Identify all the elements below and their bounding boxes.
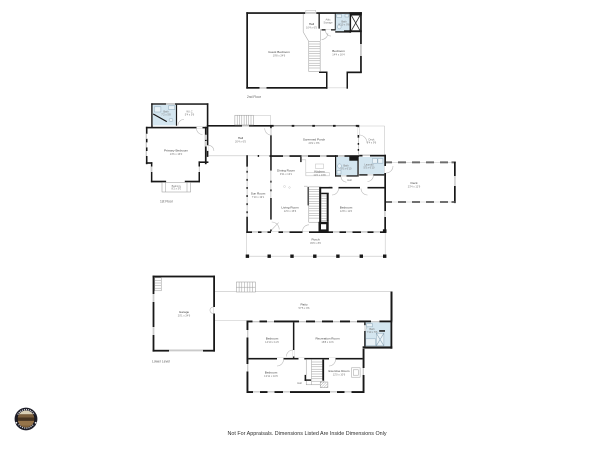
svg-text:13'11 x 10'6: 13'11 x 10'6 xyxy=(264,374,278,378)
svg-text:11'0 x 13'8: 11'0 x 13'8 xyxy=(313,173,326,177)
svg-text:Exercise Room: Exercise Room xyxy=(329,369,350,373)
svg-text:Bedroom: Bedroom xyxy=(340,206,353,210)
svg-text:Dining Room: Dining Room xyxy=(277,169,295,173)
svg-text:10'4 x 6'5: 10'4 x 6'5 xyxy=(306,25,317,29)
svg-text:5'4 x 5'6: 5'4 x 5'6 xyxy=(185,112,195,116)
svg-text:5'5 x 6'10: 5'5 x 6'10 xyxy=(364,165,375,169)
svg-text:7'2 x 5'8: 7'2 x 5'8 xyxy=(161,112,171,116)
svg-text:9'11 x 13'1: 9'11 x 13'1 xyxy=(280,172,293,176)
svg-text:5'10 x 9'6: 5'10 x 9'6 xyxy=(339,22,350,26)
svg-text:12'0 x 15'6: 12'0 x 15'6 xyxy=(284,209,297,213)
svg-text:Hall: Hall xyxy=(347,178,352,182)
svg-text:Storage: Storage xyxy=(323,21,333,25)
svg-text:57'5 x 9'6: 57'5 x 9'6 xyxy=(299,306,310,310)
svg-text:Guest Bedroom: Guest Bedroom xyxy=(268,50,290,54)
svg-text:2nd Floor: 2nd Floor xyxy=(247,95,262,99)
svg-text:5'0 x 6'10: 5'0 x 6'10 xyxy=(341,166,352,170)
svg-text:Lower Level: Lower Level xyxy=(152,360,170,364)
svg-text:1st Floor: 1st Floor xyxy=(160,200,174,204)
svg-text:Living Room: Living Room xyxy=(281,206,299,210)
svg-text:12'0 x 10'6: 12'0 x 10'6 xyxy=(333,373,346,377)
svg-text:18'8 x 11'6: 18'8 x 11'6 xyxy=(321,340,334,344)
svg-text:Hall: Hall xyxy=(297,381,302,385)
svg-text:Hall: Hall xyxy=(238,136,244,140)
svg-text:Sun Room: Sun Room xyxy=(251,192,266,196)
svg-text:20'1 x 24'6: 20'1 x 24'6 xyxy=(178,314,191,318)
svg-text:7'10 x 19'1: 7'10 x 19'1 xyxy=(252,195,265,199)
svg-text:14'10 x 11'6: 14'10 x 11'6 xyxy=(265,340,279,344)
svg-text:Primary Bedroom: Primary Bedroom xyxy=(164,149,188,153)
svg-text:45'6 x 8'0: 45'6 x 8'0 xyxy=(310,241,321,245)
svg-text:23'4 x 12'9: 23'4 x 12'9 xyxy=(408,185,421,189)
svg-text:Porch: Porch xyxy=(311,238,319,242)
svg-text:Bedroom: Bedroom xyxy=(265,371,278,375)
svg-text:Bedroom: Bedroom xyxy=(332,49,345,53)
svg-text:14'4 x 16'4: 14'4 x 16'4 xyxy=(332,53,345,57)
svg-text:20'4 x 6'5: 20'4 x 6'5 xyxy=(235,140,246,144)
svg-text:13'6 x 16'0: 13'6 x 16'0 xyxy=(170,152,183,156)
svg-text:12'8 x 11'6: 12'8 x 11'6 xyxy=(340,209,353,213)
svg-text:29'2 x 8'6: 29'2 x 8'6 xyxy=(309,141,320,145)
svg-text:Bedroom: Bedroom xyxy=(266,337,279,341)
svg-text:Kitchen: Kitchen xyxy=(314,170,325,174)
svg-text:Not For Appraisals. Dimensions: Not For Appraisals. Dimensions Listed Ar… xyxy=(227,431,386,437)
svg-text:Deck: Deck xyxy=(410,181,418,185)
svg-text:Patio: Patio xyxy=(300,303,307,307)
svg-text:Recreation Room: Recreation Room xyxy=(315,337,339,341)
svg-text:8'4 x 9'6: 8'4 x 9'6 xyxy=(367,141,377,145)
svg-text:Screened Porch: Screened Porch xyxy=(303,138,325,142)
svg-text:Garage: Garage xyxy=(179,310,190,314)
svg-text:8'2 x 3'0: 8'2 x 3'0 xyxy=(172,187,182,191)
svg-text:7'10 x 5'6: 7'10 x 5'6 xyxy=(367,330,378,334)
svg-text:19'8 x 24'6: 19'8 x 24'6 xyxy=(273,54,286,58)
